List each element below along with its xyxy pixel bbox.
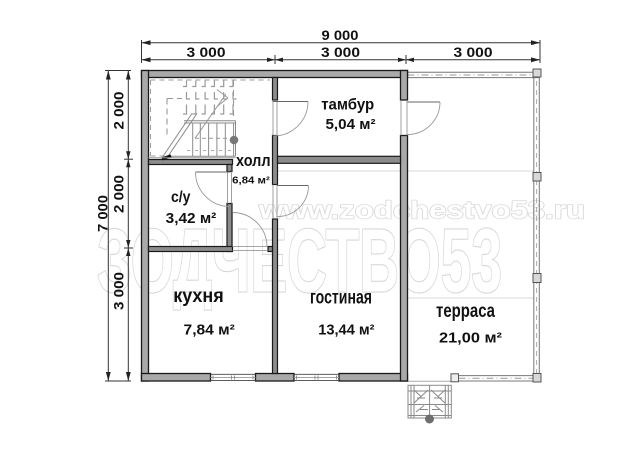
svg-text:с/у: с/у [171,189,191,206]
svg-text:3 000: 3 000 [454,44,493,60]
svg-text:2 000: 2 000 [111,175,127,213]
svg-text:кухня: кухня [173,286,224,307]
svg-text:5,04 м²: 5,04 м² [326,117,376,133]
svg-text:6,84 м²: 6,84 м² [232,175,270,186]
svg-text:13,44 м²: 13,44 м² [318,322,374,338]
svg-text:3 000: 3 000 [111,272,127,310]
svg-text:21,00 м²: 21,00 м² [439,331,502,347]
svg-text:3 000: 3 000 [321,44,360,60]
svg-text:7 000: 7 000 [95,195,111,232]
svg-text:гостиная: гостиная [310,288,372,309]
svg-text:3,42 м²: 3,42 м² [166,210,217,227]
svg-text:ЗОДЧЕСТВО53: ЗОДЧЕСТВО53 [97,212,502,312]
svg-text:терраса: терраса [436,301,495,322]
svg-text:3 000: 3 000 [187,44,226,60]
svg-text:холл: холл [236,152,271,170]
svg-text:7,84 м²: 7,84 м² [184,322,235,338]
svg-text:2 000: 2 000 [111,91,127,129]
svg-text:9 000: 9 000 [322,27,359,43]
svg-text:тамбур: тамбур [321,96,374,113]
